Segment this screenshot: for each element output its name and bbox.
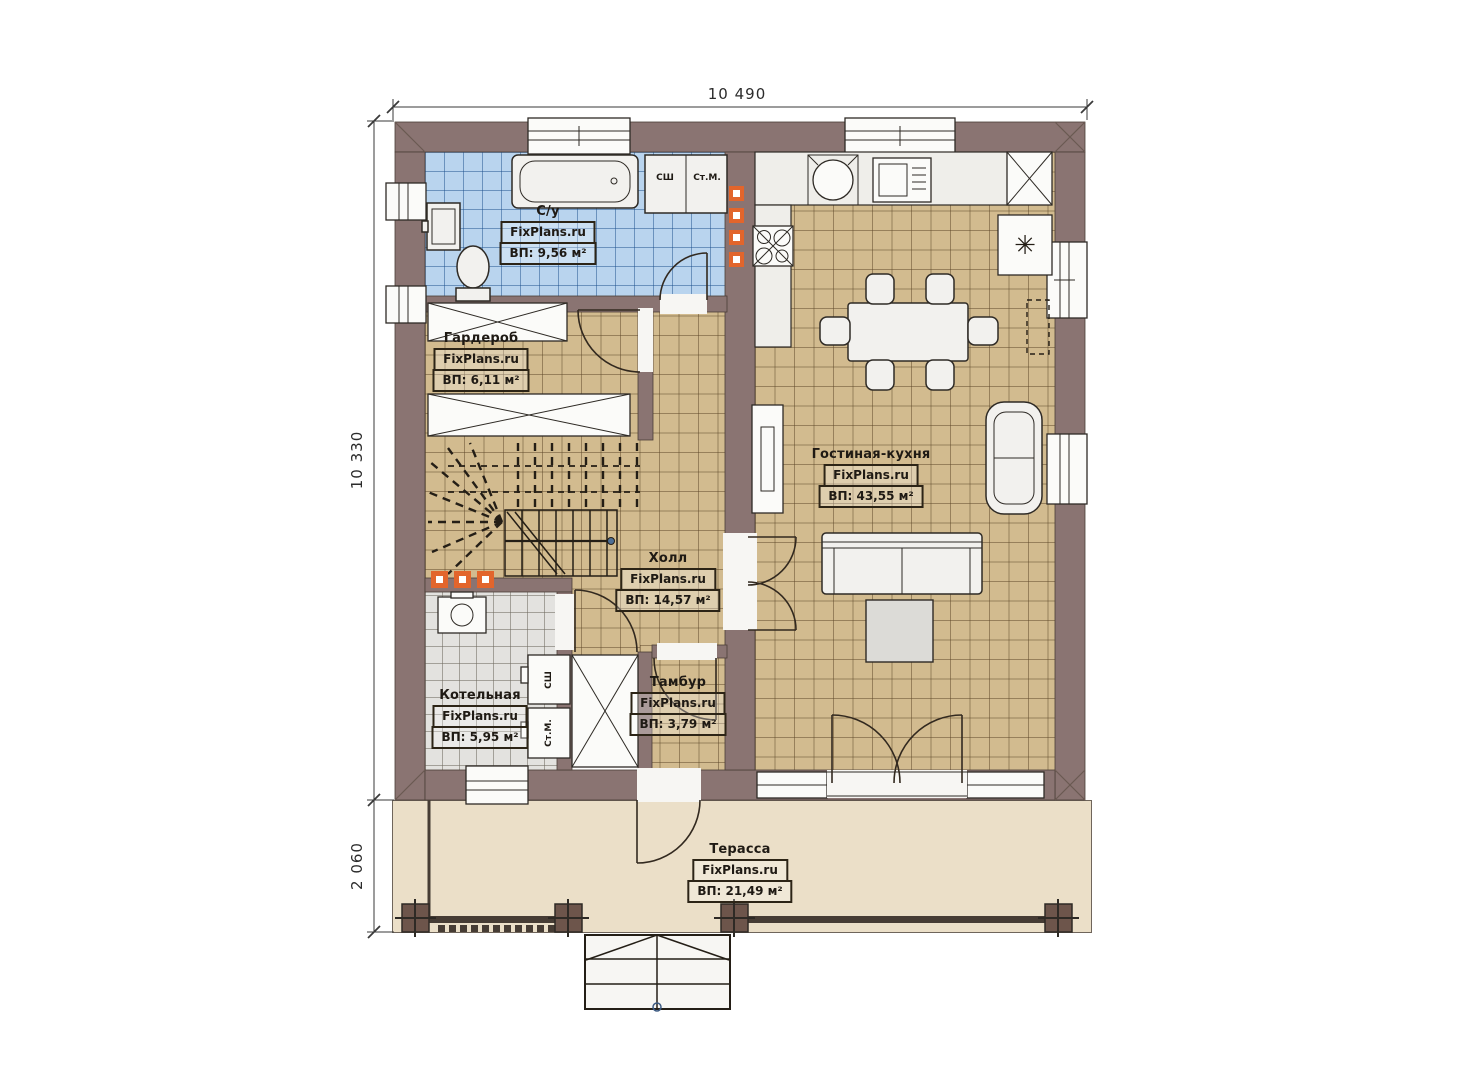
room-name: Холл xyxy=(649,551,688,566)
room-label-bathroom: С/у FixPlans.ru ВП: 9,56 м² xyxy=(499,204,596,265)
window-top-bathroom xyxy=(528,118,630,154)
room-name: Котельная xyxy=(439,688,521,703)
watermark: FixPlans.ru xyxy=(630,692,726,715)
wardrobe-door xyxy=(578,310,640,372)
bathroom-door xyxy=(660,253,707,300)
fridge: ✳ xyxy=(998,215,1052,275)
label-washing-machine-bath: Ст.М. xyxy=(693,173,721,183)
window-right-lower xyxy=(1047,434,1087,504)
room-area: ВП: 21,49 м² xyxy=(687,880,792,903)
room-area: ВП: 9,56 м² xyxy=(499,242,596,265)
tv-unit xyxy=(752,405,783,513)
room-name: Тамбур xyxy=(650,675,706,690)
window-right-upper xyxy=(1047,242,1087,318)
coffee-table xyxy=(866,600,933,662)
plan-drawing: ✳ xyxy=(0,0,1473,1080)
staircase xyxy=(428,443,640,576)
room-area: ВП: 5,95 м² xyxy=(431,726,528,749)
watermark: FixPlans.ru xyxy=(692,859,788,882)
bathroom-closet xyxy=(645,155,727,213)
label-drying-cabinet-boiler: СШ xyxy=(544,671,554,689)
watermark: FixPlans.ru xyxy=(432,705,528,728)
glazing-living-terrace xyxy=(757,770,1044,798)
toilet xyxy=(456,246,490,301)
room-label-living-kitchen: Гостиная-кухня FixPlans.ru ВП: 43,55 м² xyxy=(812,447,931,508)
window-left-bathroom xyxy=(386,183,426,220)
sofa xyxy=(822,533,982,594)
room-area: ВП: 6,11 м² xyxy=(432,369,529,392)
entrance-steps xyxy=(585,935,730,1011)
hob xyxy=(753,226,793,266)
reserved-furniture-dashed xyxy=(1027,300,1049,354)
balusters xyxy=(438,925,555,932)
room-area: ВП: 3,79 м² xyxy=(629,713,726,736)
hall-cabinet xyxy=(572,655,638,767)
label-washing-machine-boiler: Ст.М. xyxy=(544,719,554,747)
watermark: FixPlans.ru xyxy=(500,221,596,244)
room-name: Терасса xyxy=(709,842,770,857)
dimension-depth-house: 10 330 xyxy=(348,431,366,490)
room-label-hall: Холл FixPlans.ru ВП: 14,57 м² xyxy=(615,551,720,612)
tall-cabinet xyxy=(1007,152,1052,205)
boiler-unit xyxy=(438,592,486,633)
watermark: FixPlans.ru xyxy=(620,568,716,591)
terrace-structure xyxy=(395,800,1079,1011)
fridge-snowflake-icon: ✳ xyxy=(1014,231,1036,261)
watermark: FixPlans.ru xyxy=(823,464,919,487)
dimension-width-top: 10 490 xyxy=(708,85,767,103)
room-area: ВП: 14,57 м² xyxy=(615,589,720,612)
dining-set xyxy=(820,274,1049,390)
dimension-depth-terrace: 2 060 xyxy=(348,842,366,890)
window-bottom-boiler xyxy=(466,766,528,804)
room-area: ВП: 43,55 м² xyxy=(818,485,923,508)
window-top-kitchen xyxy=(845,118,955,154)
winder-steps xyxy=(428,443,502,574)
room-name: С/у xyxy=(536,204,559,219)
room-label-vestibule: Тамбур FixPlans.ru ВП: 3,79 м² xyxy=(629,675,726,736)
room-name: Гардероб xyxy=(444,331,519,346)
bathtub xyxy=(512,155,638,208)
floor-plan: ✳ xyxy=(0,0,1473,1080)
watermark: FixPlans.ru xyxy=(433,348,529,371)
armchair xyxy=(986,402,1042,514)
washbasin xyxy=(422,203,460,250)
lower-flight xyxy=(505,510,617,576)
window-left-wardrobe xyxy=(386,286,426,323)
oven xyxy=(873,158,931,202)
room-label-terrace: Терасса FixPlans.ru ВП: 21,49 м² xyxy=(687,842,792,903)
room-label-wardrobe: Гардероб FixPlans.ru ВП: 6,11 м² xyxy=(432,331,529,392)
radiator-boiler xyxy=(431,571,494,588)
room-label-boiler: Котельная FixPlans.ru ВП: 5,95 м² xyxy=(431,688,528,749)
room-name: Гостиная-кухня xyxy=(812,447,931,462)
dining-table xyxy=(848,303,968,361)
label-drying-cabinet-bath: СШ xyxy=(656,173,674,183)
